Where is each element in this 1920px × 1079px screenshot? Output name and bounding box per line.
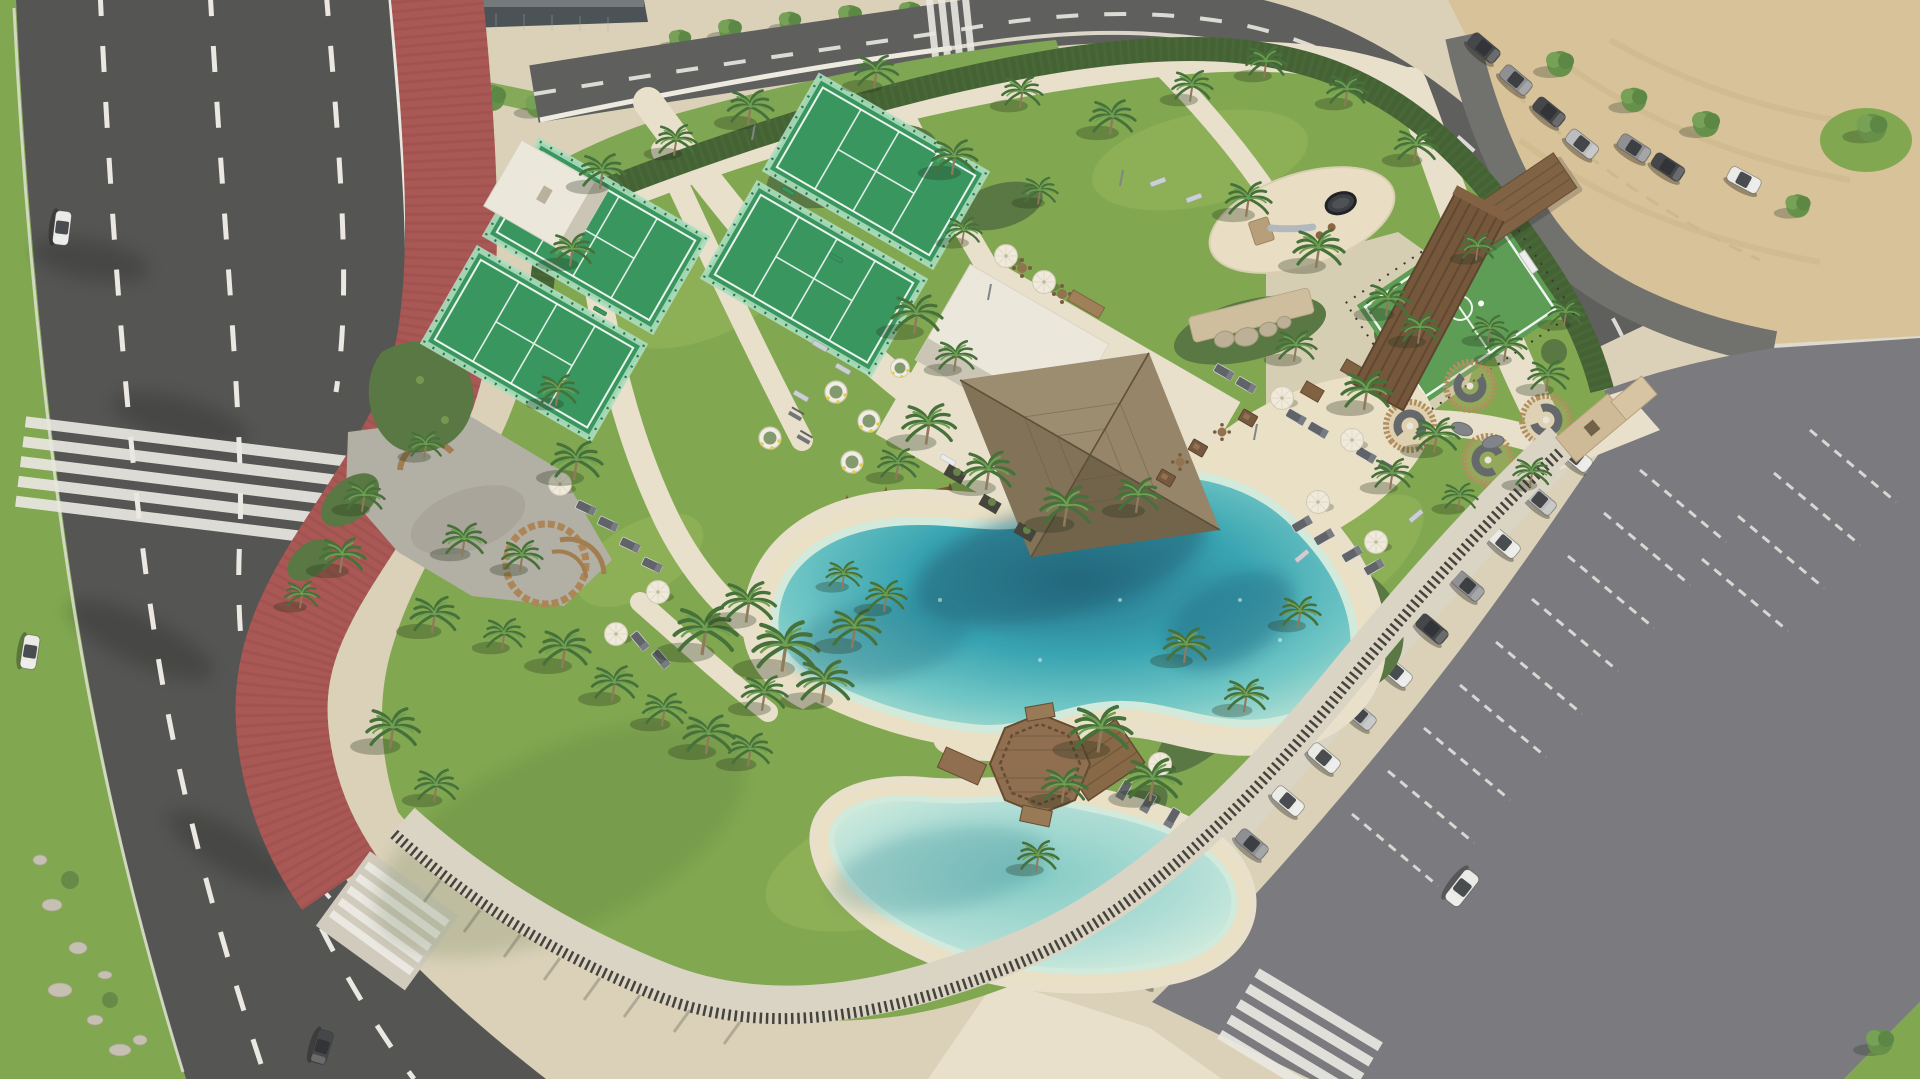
aerial-render-viewport bbox=[0, 0, 1920, 1079]
aerial-scene bbox=[0, 0, 1920, 1079]
sunlight-wash bbox=[0, 0, 1920, 1079]
